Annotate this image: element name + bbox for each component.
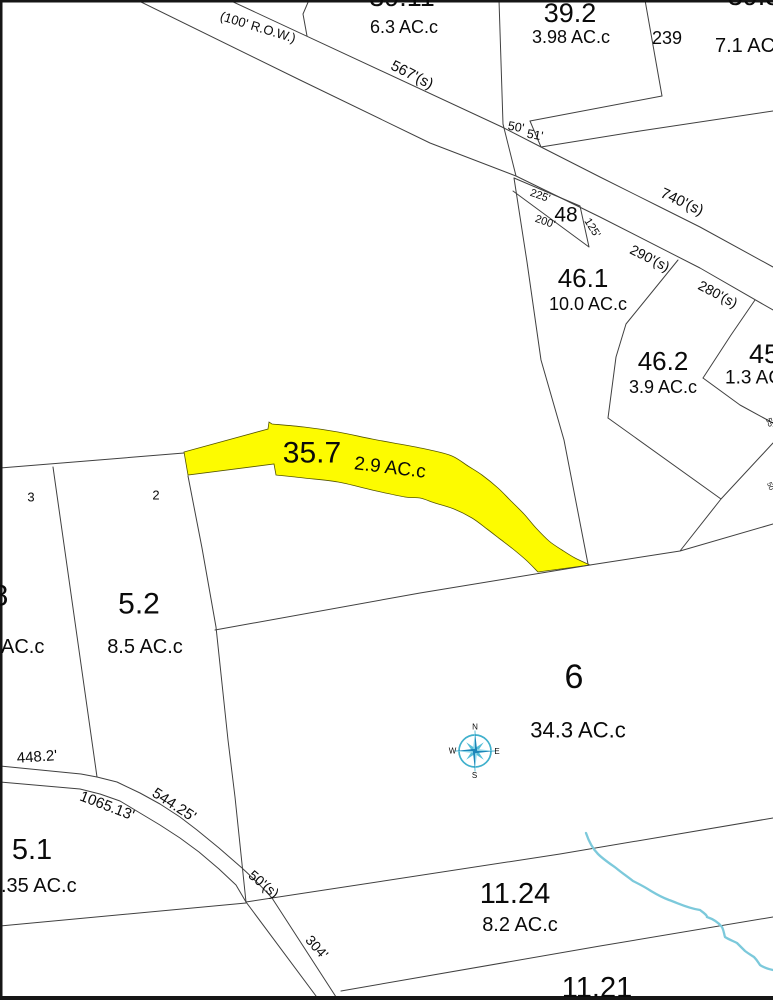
svg-text:5.1: 5.1: [12, 834, 52, 866]
svg-text:7.1 AC.c: 7.1 AC.c: [715, 35, 773, 57]
svg-text:39.5: 39.5: [728, 0, 773, 11]
svg-text:46.1: 46.1: [558, 263, 609, 293]
svg-text:46.2: 46.2: [638, 346, 689, 376]
svg-text:8.2 AC.c: 8.2 AC.c: [482, 914, 558, 936]
svg-text:AC.c: AC.c: [1, 636, 44, 658]
svg-text:39.2: 39.2: [544, 0, 597, 28]
svg-text:11.21: 11.21: [562, 972, 632, 1000]
svg-text:5.2: 5.2: [118, 588, 160, 621]
svg-text:45: 45: [749, 339, 773, 369]
svg-text:39.11: 39.11: [369, 0, 435, 12]
svg-text:448.2': 448.2': [16, 747, 58, 767]
svg-text:8.5 AC.c: 8.5 AC.c: [107, 636, 183, 658]
svg-text:1.3 AC.c: 1.3 AC.c: [725, 368, 773, 389]
svg-text:N: N: [472, 723, 478, 732]
svg-text:6: 6: [565, 658, 584, 696]
svg-text:239: 239: [652, 28, 682, 48]
svg-text:.35 AC.c: .35 AC.c: [1, 875, 77, 897]
svg-text:48: 48: [554, 204, 577, 227]
svg-text:10.0 AC.c: 10.0 AC.c: [549, 294, 627, 314]
svg-text:6.3 AC.c: 6.3 AC.c: [370, 17, 438, 37]
svg-text:34.3 AC.c: 34.3 AC.c: [530, 718, 625, 743]
svg-text:2: 2: [152, 488, 159, 503]
svg-text:W: W: [449, 747, 457, 756]
svg-text:E: E: [494, 747, 499, 756]
svg-text:51': 51': [526, 127, 544, 144]
svg-text:11.24: 11.24: [480, 878, 550, 910]
svg-text:35.7: 35.7: [283, 437, 341, 470]
svg-text:S: S: [472, 771, 477, 780]
svg-text:8: 8: [0, 580, 8, 613]
svg-text:3: 3: [27, 490, 34, 505]
svg-text:3.98 AC.c: 3.98 AC.c: [532, 27, 610, 47]
svg-text:50': 50': [507, 119, 525, 136]
svg-text:3.9 AC.c: 3.9 AC.c: [629, 377, 697, 397]
